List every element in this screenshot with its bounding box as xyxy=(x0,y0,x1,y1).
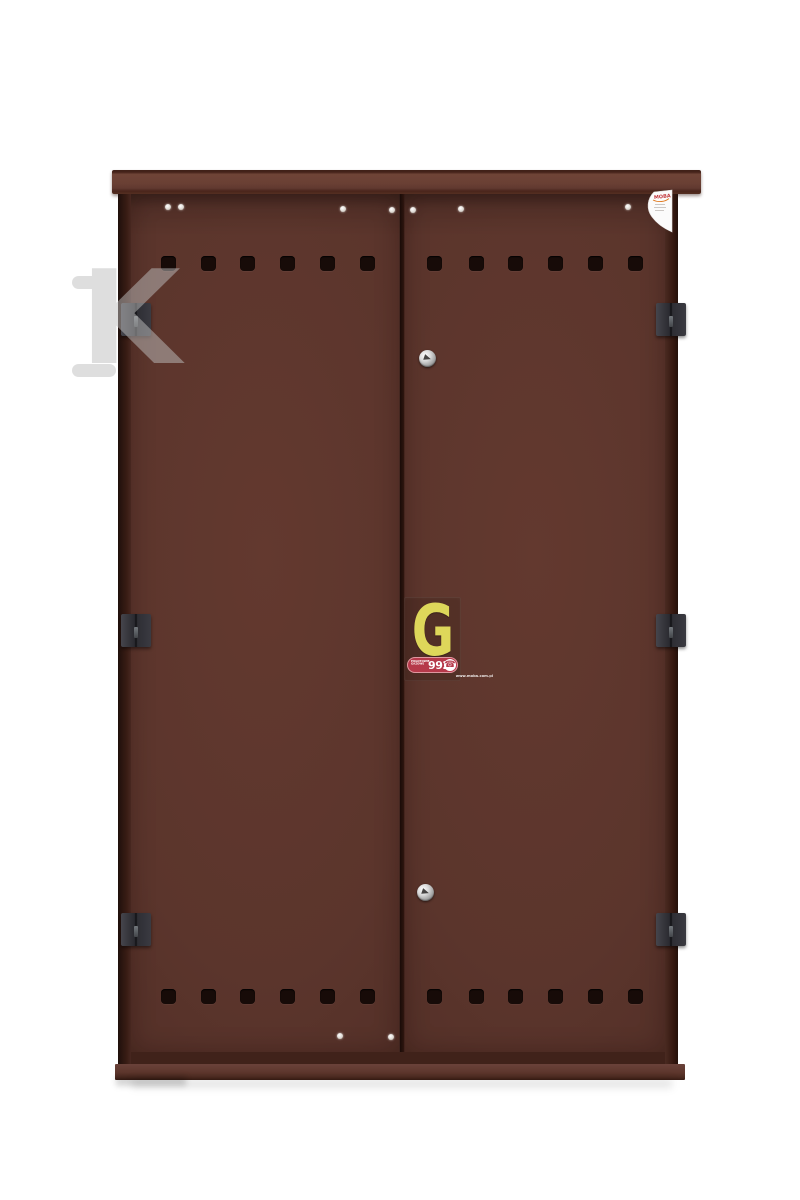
floor-shadow-corner xyxy=(116,1076,186,1086)
watermark-logo: K xyxy=(60,250,190,390)
vent-hole xyxy=(588,989,603,1004)
hinge-left-middle xyxy=(121,614,151,647)
vent-hole xyxy=(628,989,643,1004)
rivet xyxy=(410,207,416,213)
vent-hole xyxy=(508,989,523,1004)
vent-hole xyxy=(201,989,216,1004)
vent-hole xyxy=(280,989,295,1004)
rivet xyxy=(165,204,171,210)
hinge-left-bottom xyxy=(121,913,151,946)
vent-hole xyxy=(280,256,295,271)
hinge-right-bottom xyxy=(656,913,686,946)
gas-sticker: G POGOTOWIE GAZOWE 992 ☎ www.moba.com.pl xyxy=(404,597,461,681)
vent-hole xyxy=(320,989,335,1004)
vent-hole xyxy=(427,256,442,271)
gas-letter-g: G xyxy=(411,598,454,665)
vent-hole xyxy=(360,989,375,1004)
vent-hole xyxy=(508,256,523,271)
rivet xyxy=(389,207,395,213)
vent-hole xyxy=(427,989,442,1004)
brand-corner-sticker: MOBA xyxy=(645,189,673,233)
phone-icon: ☎ xyxy=(444,659,456,671)
vent-hole xyxy=(548,256,563,271)
rivet xyxy=(340,206,346,212)
vent-hole xyxy=(240,989,255,1004)
vent-hole xyxy=(320,256,335,271)
rivet xyxy=(388,1034,394,1040)
hinge-right-middle xyxy=(656,614,686,647)
watermark-bar-bottom xyxy=(72,364,116,377)
vent-hole xyxy=(548,989,563,1004)
vent-hole xyxy=(469,989,484,1004)
vent-hole xyxy=(201,256,216,271)
rivet xyxy=(458,206,464,212)
cabinet-base xyxy=(115,1064,685,1080)
rivet xyxy=(178,204,184,210)
emergency-line2: GAZOWE xyxy=(411,663,424,666)
vent-hole xyxy=(588,256,603,271)
vent-hole xyxy=(360,256,375,271)
emergency-band: POGOTOWIE GAZOWE 992 ☎ xyxy=(407,657,458,673)
cabinet-lid xyxy=(112,170,701,194)
brand-sticker-shape: MOBA xyxy=(645,189,673,233)
cabinet-body xyxy=(118,194,678,1064)
vent-hole xyxy=(240,256,255,271)
vent-hole xyxy=(161,989,176,1004)
vent-hole xyxy=(628,256,643,271)
door-lock-bottom xyxy=(417,884,434,901)
door-lock-top xyxy=(419,350,436,367)
floor-shadow xyxy=(132,1079,672,1088)
hinge-right-top xyxy=(656,303,686,336)
rivet xyxy=(337,1033,343,1039)
vent-hole xyxy=(469,256,484,271)
rivet xyxy=(625,204,631,210)
product-photo: G POGOTOWIE GAZOWE 992 ☎ www.moba.com.pl… xyxy=(0,0,800,1200)
